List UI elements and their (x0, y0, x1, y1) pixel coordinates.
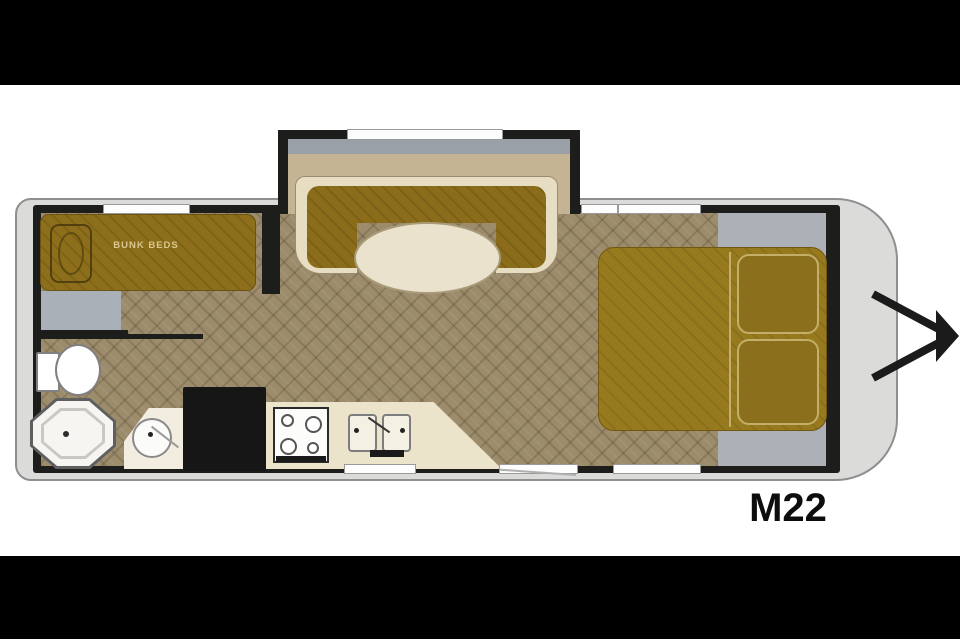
slide-out-window (347, 129, 503, 140)
sink-knob-icon (354, 428, 359, 433)
bed-head-divider (729, 252, 731, 427)
a-frame-hitch-icon (858, 276, 960, 398)
burner-icon (280, 438, 297, 455)
window-bunk (103, 204, 190, 214)
pillow (737, 254, 819, 334)
shower-drain (63, 431, 69, 437)
sink-knob-icon (400, 428, 405, 433)
window-bedroom-side (613, 464, 701, 474)
burner-icon (307, 442, 319, 454)
window-bed-left (581, 204, 618, 214)
dinette-table (354, 222, 501, 294)
burner-icon (281, 414, 294, 427)
range-stove (273, 407, 329, 463)
bathroom-sliding-door (128, 334, 203, 339)
pillow (737, 339, 819, 425)
bunk-beds-label: BUNK BEDS (96, 240, 196, 251)
bunk-pillow-inner (58, 232, 84, 275)
refrigerator (183, 387, 266, 471)
model-label: M22 (728, 486, 848, 531)
toilet (55, 344, 101, 396)
slide-out-rear-window-band (288, 139, 570, 154)
sink-drain-board (370, 450, 404, 457)
wardrobe (41, 291, 121, 331)
burner-icon (305, 416, 322, 433)
window-kitchen (344, 464, 416, 474)
letterbox-bottom-bar (0, 556, 960, 639)
window-bed-right (618, 204, 701, 214)
bunk-dinette-wall (262, 205, 280, 294)
letterbox-top-bar (0, 0, 960, 85)
kitchen-sink-bowl-right (382, 414, 411, 452)
bathroom-faucet (148, 432, 153, 437)
oven-handle (276, 456, 326, 462)
floorplan-page: { "title": "Travel trailer floor plan", … (0, 0, 960, 639)
bathroom-wall (33, 330, 128, 339)
